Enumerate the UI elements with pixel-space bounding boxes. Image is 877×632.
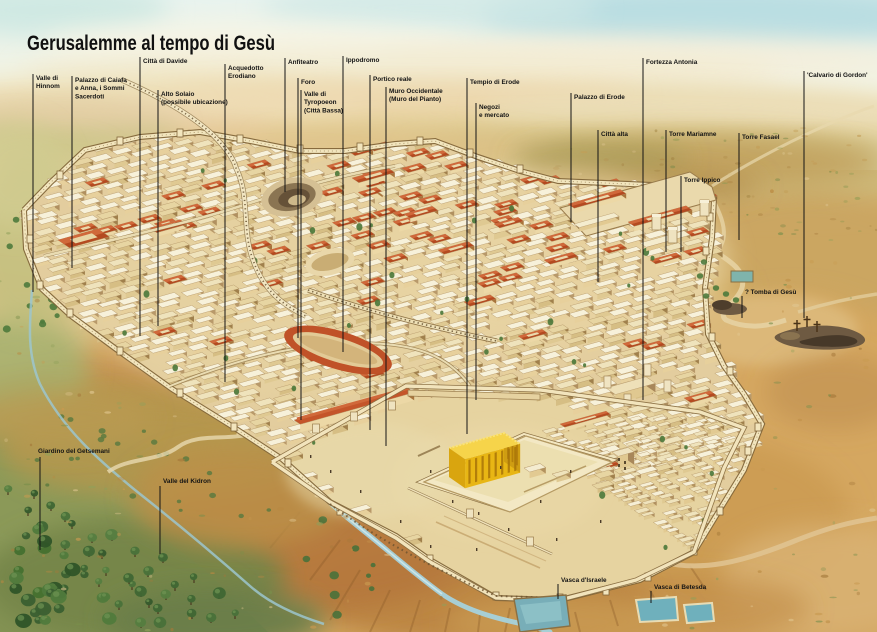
svg-text:Torre Fasael: Torre Fasael — [742, 134, 780, 141]
svg-text:Portico reale: Portico reale — [373, 76, 412, 83]
svg-text:Alto Solaio: Alto Solaio — [161, 91, 194, 98]
svg-text:Vasca di Betesda: Vasca di Betesda — [654, 584, 707, 591]
svg-text:Valle di: Valle di — [304, 91, 326, 98]
svg-text:? Tomba di Gesù: ? Tomba di Gesù — [745, 289, 796, 296]
svg-text:Città alta: Città alta — [601, 131, 628, 138]
svg-text:Erodiano: Erodiano — [228, 73, 256, 80]
svg-text:Sacerdoti: Sacerdoti — [75, 93, 104, 100]
svg-text:Valle di: Valle di — [36, 75, 58, 82]
svg-text:Fortezza Antonia: Fortezza Antonia — [646, 59, 698, 66]
svg-text:Acquedotto: Acquedotto — [228, 65, 264, 72]
svg-text:Hinnom: Hinnom — [36, 83, 60, 90]
svg-text:Negozi: Negozi — [479, 104, 500, 111]
svg-text:Anfiteatro: Anfiteatro — [288, 59, 318, 66]
svg-text:Giardino del Getsemani: Giardino del Getsemani — [38, 448, 110, 455]
svg-text:Ippodromo: Ippodromo — [346, 57, 379, 64]
svg-text:(Muro del Pianto): (Muro del Pianto) — [389, 96, 441, 103]
svg-text:Palazzo di Erode: Palazzo di Erode — [574, 94, 625, 101]
svg-text:Vasca d'Israele: Vasca d'Israele — [561, 577, 607, 584]
svg-text:Torre Mariamne: Torre Mariamne — [669, 131, 717, 138]
svg-text:Valle del Kidron: Valle del Kidron — [163, 478, 211, 485]
svg-text:(Città Bassa): (Città Bassa) — [304, 107, 343, 114]
svg-text:Torre Ippico: Torre Ippico — [684, 177, 721, 184]
svg-text:Palazzo di Caiafa: Palazzo di Caiafa — [75, 77, 127, 84]
svg-text:e mercato: e mercato — [479, 112, 509, 119]
svg-text:e Anna, i Sommi: e Anna, i Sommi — [75, 85, 125, 92]
svg-text:Gerusalemme al tempo di Gesù: Gerusalemme al tempo di Gesù — [27, 31, 275, 55]
svg-text:Tyropoeon: Tyropoeon — [304, 99, 337, 106]
svg-text:Tempio di Erode: Tempio di Erode — [470, 79, 520, 86]
svg-text:Foro: Foro — [301, 79, 315, 86]
svg-text:'Calvario di Gordon': 'Calvario di Gordon' — [807, 72, 868, 79]
svg-text:(possibile ubicazione): (possibile ubicazione) — [161, 99, 228, 106]
svg-text:Città di Davide: Città di Davide — [143, 58, 188, 65]
svg-text:Muro Occidentale: Muro Occidentale — [389, 88, 443, 95]
